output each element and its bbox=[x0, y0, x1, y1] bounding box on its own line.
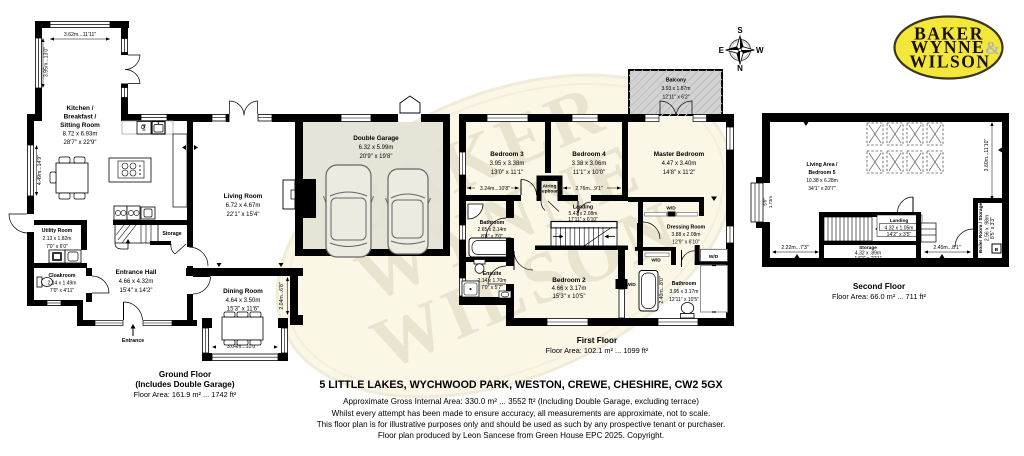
svg-text:12'9" x 6'10": 12'9" x 6'10" bbox=[672, 240, 700, 246]
svg-text:1.73m: 1.73m bbox=[768, 196, 773, 209]
svg-text:15'3" x 11'6": 15'3" x 11'6" bbox=[227, 307, 259, 313]
svg-text:2.45m...8'1": 2.45m...8'1" bbox=[933, 245, 961, 251]
svg-text:Sitting Room: Sitting Room bbox=[60, 122, 100, 129]
svg-text:10.38 x 6.28m: 10.38 x 6.28m bbox=[806, 178, 838, 184]
svg-text:(Includes Double Garage): (Includes Double Garage) bbox=[135, 380, 234, 389]
svg-text:Storage: Storage bbox=[162, 231, 181, 237]
svg-text:13'0" x 11'1": 13'0" x 11'1" bbox=[491, 170, 523, 176]
svg-text:Cloakroom: Cloakroom bbox=[48, 273, 75, 279]
svg-text:Entrance: Entrance bbox=[122, 338, 144, 344]
svg-text:14'2" x 2'11": 14'2" x 2'11" bbox=[854, 256, 881, 262]
svg-text:W: W bbox=[756, 46, 764, 55]
svg-text:3.95 x 3.38m: 3.95 x 3.38m bbox=[490, 161, 525, 167]
svg-text:This floor plan is for illustr: This floor plan is for illustrative purp… bbox=[317, 420, 726, 429]
svg-text:5 LITTLE LAKES, WYCHWOOD PARK,: 5 LITTLE LAKES, WYCHWOOD PARK, WESTON, C… bbox=[319, 379, 723, 391]
svg-text:Floor Area: 102.1 m² ... 1099: Floor Area: 102.1 m² ... 1099 ft² bbox=[546, 346, 649, 355]
svg-text:15'3" x 10'5": 15'3" x 10'5" bbox=[553, 294, 586, 300]
svg-text:Bedroom 3: Bedroom 3 bbox=[490, 151, 524, 158]
svg-text:Living Room: Living Room bbox=[224, 193, 263, 200]
svg-text:34'1" x 20'7": 34'1" x 20'7" bbox=[808, 186, 836, 192]
svg-text:W/D: W/D bbox=[709, 254, 719, 260]
svg-text:Master Bedroom: Master Bedroom bbox=[654, 151, 705, 158]
svg-text:Ground Floor: Ground Floor bbox=[159, 370, 212, 379]
svg-text:Bedroom 5: Bedroom 5 bbox=[808, 170, 835, 176]
svg-text:2.13 x 1.82m: 2.13 x 1.82m bbox=[43, 236, 72, 242]
svg-text:5'8": 5'8" bbox=[763, 198, 768, 206]
svg-text:Second Floor: Second Floor bbox=[853, 282, 906, 291]
svg-text:22'1" x 15'4": 22'1" x 15'4" bbox=[227, 212, 260, 218]
svg-text:4.32 x 1.05m: 4.32 x 1.05m bbox=[885, 226, 914, 232]
svg-text:First Floor: First Floor bbox=[577, 336, 618, 345]
svg-text:4.49m...14'9": 4.49m...14'9" bbox=[37, 155, 43, 185]
svg-text:6.32 x 5.99m: 6.32 x 5.99m bbox=[359, 145, 394, 151]
svg-text:3.95m...13'0": 3.95m...13'0" bbox=[44, 47, 50, 77]
svg-text:Boiler Room / Storage: Boiler Room / Storage bbox=[978, 202, 984, 253]
svg-text:Living Area /: Living Area / bbox=[807, 162, 838, 168]
svg-text:B: B bbox=[995, 247, 999, 253]
svg-text:2.14 x 1.70m: 2.14 x 1.70m bbox=[478, 278, 507, 284]
svg-text:Breakfast /: Breakfast / bbox=[64, 114, 97, 121]
svg-text:Utility Room: Utility Room bbox=[42, 228, 73, 234]
svg-text:Bedroom 2: Bedroom 2 bbox=[552, 277, 586, 284]
svg-text:3.95 x 3.17m: 3.95 x 3.17m bbox=[670, 289, 699, 295]
svg-text:Ensuite: Ensuite bbox=[483, 271, 502, 277]
svg-text:WILSON: WILSON bbox=[910, 52, 991, 72]
svg-text:W/D: W/D bbox=[651, 258, 661, 264]
svg-text:Floor plan produced by Leon Sa: Floor plan produced by Leon Sancese from… bbox=[378, 431, 664, 440]
svg-text:3.93 x 1.87m: 3.93 x 1.87m bbox=[662, 86, 691, 92]
svg-text:Whilst every attempt has been: Whilst every attempt has been made to en… bbox=[332, 409, 711, 418]
svg-text:Floor Area: 66.0 m² ... 711 ft: Floor Area: 66.0 m² ... 711 ft² bbox=[832, 292, 926, 301]
svg-text:Double Garage: Double Garage bbox=[353, 135, 399, 142]
svg-text:Bathroom: Bathroom bbox=[480, 220, 505, 226]
svg-text:15'4" x 14'2": 15'4" x 14'2" bbox=[120, 288, 153, 294]
svg-text:7'0" x 4'11": 7'0" x 4'11" bbox=[50, 288, 74, 294]
svg-text:Floor Area: 161.9 m² ... 1742: Floor Area: 161.9 m² ... 1742 ft² bbox=[134, 390, 237, 399]
svg-text:3.38 x 3.06m: 3.38 x 3.06m bbox=[572, 161, 607, 167]
svg-text:W/D: W/D bbox=[666, 206, 676, 212]
svg-text:12'11" x 10'5": 12'11" x 10'5" bbox=[669, 297, 699, 303]
svg-text:2.38m...7'10": 2.38m...7'10" bbox=[545, 133, 551, 163]
svg-text:E: E bbox=[719, 46, 725, 55]
svg-text:W/D: W/D bbox=[626, 282, 636, 288]
svg-text:28'7" x 22'9": 28'7" x 22'9" bbox=[64, 140, 97, 146]
svg-text:4.66 x 4.32m: 4.66 x 4.32m bbox=[119, 279, 154, 285]
svg-text:3.62m...11'11": 3.62m...11'11" bbox=[64, 32, 97, 38]
svg-text:Entrance Hall: Entrance Hall bbox=[116, 269, 157, 276]
svg-text:Kitchen /: Kitchen / bbox=[67, 105, 94, 112]
svg-text:2.76m...9'1": 2.76m...9'1" bbox=[575, 186, 603, 192]
svg-text:2.40m...8'0": 2.40m...8'0" bbox=[659, 276, 665, 304]
svg-text:20'9" x 19'8": 20'9" x 19'8" bbox=[360, 154, 393, 160]
svg-text:N: N bbox=[737, 64, 743, 73]
svg-text:2.04m...6'8": 2.04m...6'8" bbox=[279, 282, 285, 310]
svg-text:2.65 x 2.14m: 2.65 x 2.14m bbox=[478, 227, 507, 233]
svg-text:6.72 x 4.67m: 6.72 x 4.67m bbox=[226, 203, 261, 209]
svg-text:14'2" x 3'5": 14'2" x 3'5" bbox=[887, 232, 912, 238]
svg-text:7'0" x 6'0": 7'0" x 6'0" bbox=[46, 244, 68, 250]
svg-text:Cupboard: Cupboard bbox=[538, 189, 561, 195]
svg-text:Dressing Room: Dressing Room bbox=[667, 225, 706, 231]
svg-text:8'5" x 3'3": 8'5" x 3'3" bbox=[990, 217, 996, 239]
svg-text:14'8" x 11'2": 14'8" x 11'2" bbox=[663, 170, 695, 176]
svg-text:2.14 x 1.49m: 2.14 x 1.49m bbox=[48, 281, 77, 287]
svg-text:Bathroom: Bathroom bbox=[672, 281, 697, 287]
svg-text:7'0" x 5'7": 7'0" x 5'7" bbox=[481, 285, 503, 291]
svg-text:Landing: Landing bbox=[890, 218, 909, 224]
svg-text:Dining Room: Dining Room bbox=[223, 288, 263, 295]
svg-text:4.47 x 3.40m: 4.47 x 3.40m bbox=[662, 161, 697, 167]
svg-text:4.64 x 3.50m: 4.64 x 3.50m bbox=[226, 298, 261, 304]
svg-text:11'1" x 10'0": 11'1" x 10'0" bbox=[573, 170, 605, 176]
svg-text:2.22m...7'3": 2.22m...7'3" bbox=[781, 245, 809, 251]
svg-text:Balcony: Balcony bbox=[666, 78, 686, 84]
svg-text:Landing: Landing bbox=[573, 205, 593, 211]
svg-text:Approximate Gross Internal Are: Approximate Gross Internal Area: 330.0 m… bbox=[343, 397, 699, 406]
svg-text:3.60m...11'10": 3.60m...11'10" bbox=[984, 138, 990, 171]
svg-text:Bedroom 4: Bedroom 4 bbox=[572, 151, 606, 158]
svg-text:12'11" x 6'2": 12'11" x 6'2" bbox=[662, 95, 689, 101]
svg-text:S: S bbox=[737, 26, 743, 35]
svg-text:3.24m...10'8": 3.24m...10'8" bbox=[480, 186, 510, 192]
svg-text:3.88 x 2.08m: 3.88 x 2.08m bbox=[672, 232, 701, 238]
svg-text:4.66 x 3.17m: 4.66 x 3.17m bbox=[552, 286, 587, 292]
svg-text:8.72 x 6.93m: 8.72 x 6.93m bbox=[63, 132, 98, 138]
